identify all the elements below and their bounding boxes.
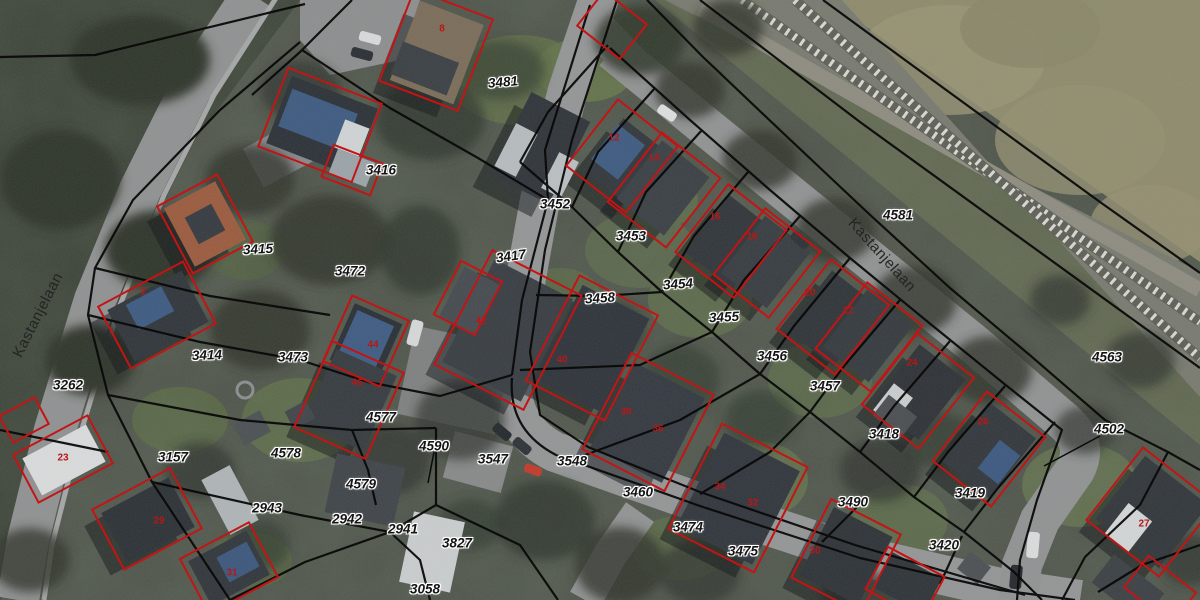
photo-grain <box>0 0 1200 600</box>
map-viewport[interactable]: 3481341634524581345334153417347234543458… <box>0 0 1200 600</box>
aerial-imagery <box>0 0 1200 600</box>
